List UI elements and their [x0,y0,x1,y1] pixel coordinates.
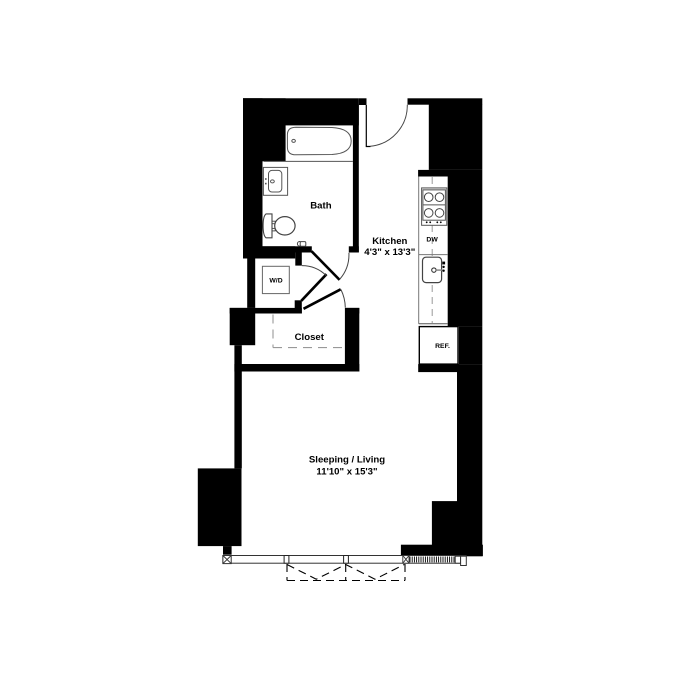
svg-text:Sleeping / Living: Sleeping / Living [309,455,385,466]
svg-text:4'3" x 13'3": 4'3" x 13'3" [364,247,415,258]
svg-text:Bath: Bath [310,201,331,212]
svg-text:REF.: REF. [435,343,450,350]
svg-text:DW: DW [426,236,438,243]
svg-text:W/D: W/D [269,278,282,285]
svg-text:Kitchen: Kitchen [372,236,407,247]
svg-text:11'10" x 15'3": 11'10" x 15'3" [316,467,377,478]
svg-text:Closet: Closet [295,332,325,343]
